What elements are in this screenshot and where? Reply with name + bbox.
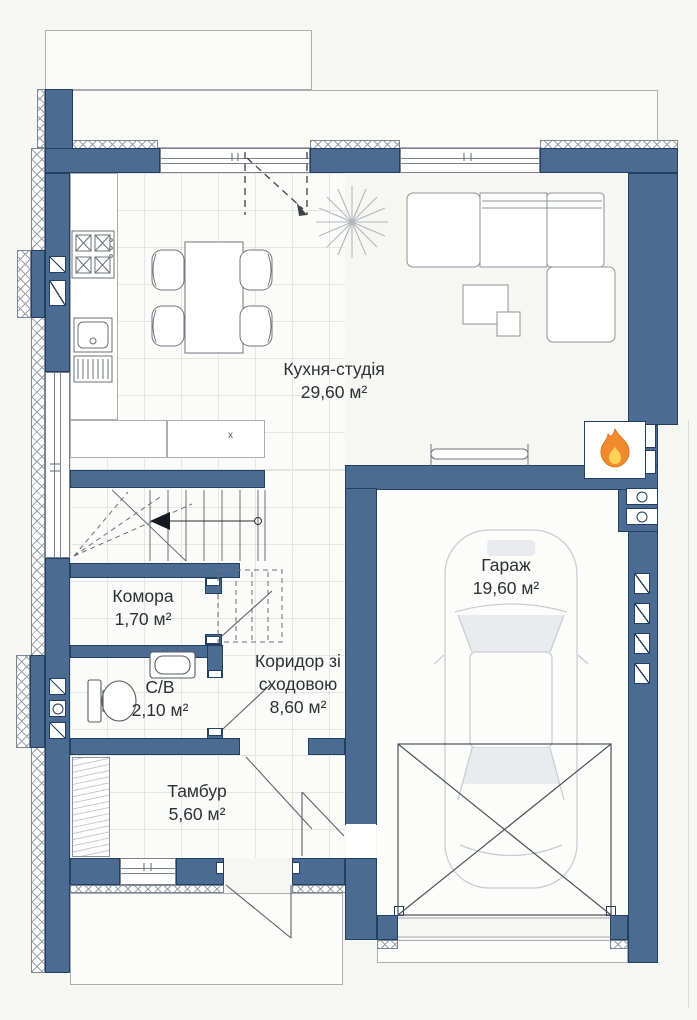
room-area: 1,70 м² [112,608,173,631]
room-area: 2,10 м² [132,699,189,722]
room-name: Комора [112,585,173,608]
room-area: 29,60 м² [283,381,384,404]
room-name: Коридор зі сходовою [239,650,357,696]
room-label-pantry: Комора 1,70 м² [112,585,173,631]
bath-sink-icon [150,647,195,678]
room-label-corridor: Коридор зі сходовою 8,60 м² [239,650,357,719]
room-label-vestibule: Тамбур 5,60 м² [167,780,226,826]
room-area: 8,60 м² [239,696,357,719]
cabinet-mark: x [228,430,233,441]
room-area: 19,60 м² [473,577,540,600]
stove-icon [72,231,114,278]
entry-door-swing [226,885,291,938]
coffee-table [463,285,520,336]
kitchen-sink-icon [74,318,112,382]
room-name: Тамбур [167,780,226,803]
room-label-bathroom: С/В 2,10 м² [132,676,189,722]
door-swings [222,591,344,938]
sideboard [431,444,528,466]
room-area: 5,60 м² [167,803,226,826]
flame-icon [601,429,629,467]
pantry-door-swing [222,591,272,636]
plant-icon [316,186,388,258]
dining-table [185,242,243,353]
room-name: С/В [132,676,189,699]
stair-direction-arrow-icon [150,512,262,530]
garage-side-door-swing [302,792,344,856]
void-arrowhead [297,203,307,216]
room-label-garage: Гараж 19,60 м² [473,554,540,600]
floor-plan: Кухня-студія 29,60 м² Гараж 19,60 м² Ком… [0,0,697,1020]
room-label-kitchen: Кухня-студія 29,60 м² [283,358,384,404]
toilet-icon [88,680,136,722]
room-name: Гараж [473,554,540,577]
room-name: Кухня-студія [283,358,384,381]
